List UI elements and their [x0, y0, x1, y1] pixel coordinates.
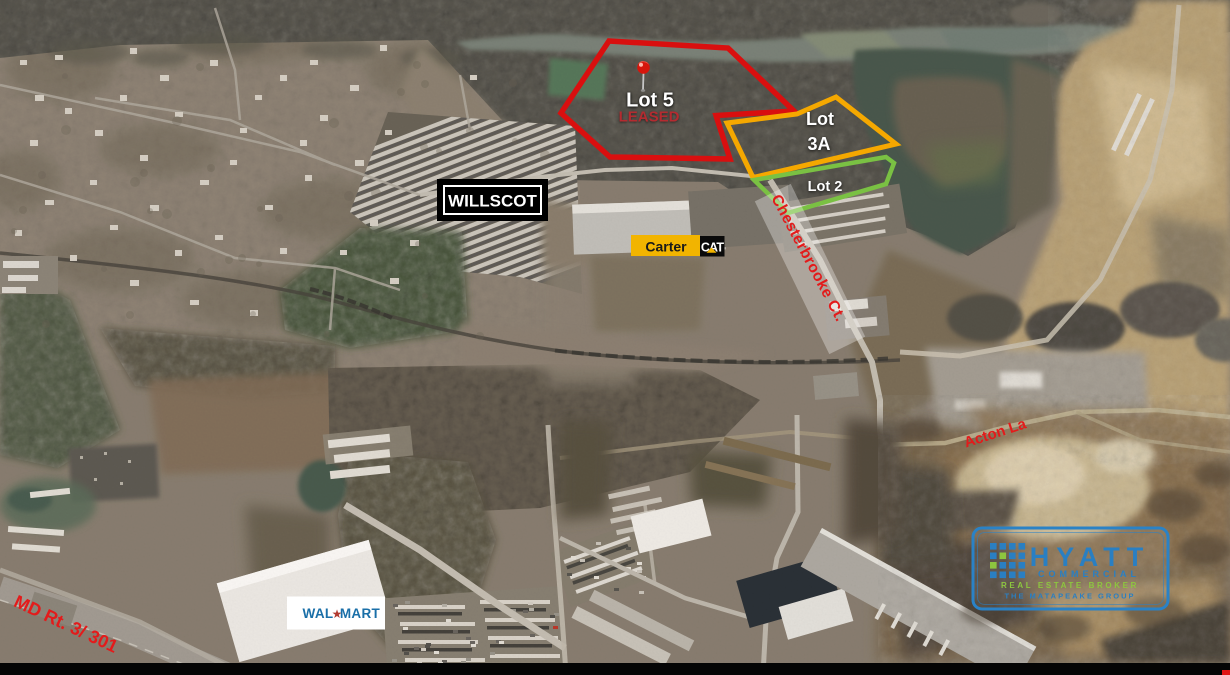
svg-text:LEASED: LEASED — [619, 109, 680, 126]
svg-text:REAL ESTATE BROKER: REAL ESTATE BROKER — [1001, 581, 1139, 590]
svg-text:HYATT: HYATT — [1030, 542, 1151, 572]
svg-text:COMMERCIAL: COMMERCIAL — [1038, 569, 1140, 579]
svg-text:WILLSCOT: WILLSCOT — [448, 192, 537, 211]
svg-text:Lot: Lot — [806, 109, 834, 129]
svg-text:MART: MART — [340, 606, 381, 621]
svg-text:THE MATAPEAKE GROUP: THE MATAPEAKE GROUP — [1004, 592, 1135, 601]
svg-text:Carter: Carter — [645, 239, 687, 255]
svg-text:3A: 3A — [807, 134, 830, 154]
svg-text:Lot 2: Lot 2 — [808, 179, 843, 195]
svg-text:WAL: WAL — [303, 606, 334, 621]
